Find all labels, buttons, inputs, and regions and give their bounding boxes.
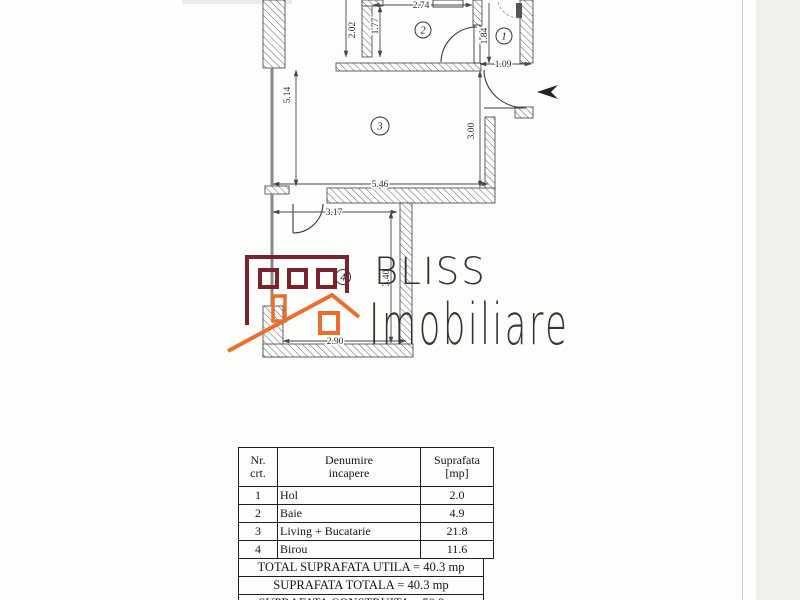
table-row: 3 Living + Bucatarie 21.8 — [239, 523, 494, 541]
room-name-cell: Birou — [278, 541, 421, 559]
room-name-cell: Baie — [278, 505, 421, 523]
area-cell: 21.8 — [421, 523, 494, 541]
dimension-label: 2.90 — [327, 337, 344, 347]
area-cell: 4.9 — [421, 505, 494, 523]
logo-brand-subname: Imobiliare — [369, 292, 569, 358]
row-number-cell: 3 — [239, 523, 278, 541]
svg-text:1: 1 — [501, 32, 506, 43]
dimension-label: 3.17 — [326, 208, 343, 218]
room-number-2: 2 — [415, 22, 431, 38]
area-cell: 11.6 — [421, 541, 494, 559]
dimension-label: 3.00 — [467, 122, 477, 139]
room-number-3: 3 — [371, 117, 389, 135]
svg-text:2: 2 — [420, 26, 426, 37]
dimension-label: 1.77 — [371, 17, 381, 34]
row-number-cell: 2 — [239, 505, 278, 523]
entrance-arrow-icon — [537, 85, 558, 99]
logo-brand-name: BLISS — [374, 250, 487, 293]
room-number-1: 1 — [496, 28, 512, 44]
svg-text:3: 3 — [376, 122, 382, 133]
dimension-label: 2.74 — [413, 1, 430, 11]
header-area-cell: Suprafata [mp] — [421, 448, 494, 487]
area-cell: 2.0 — [421, 487, 494, 505]
scanned-floor-plan-page: 2.74 2.02 1.77 1.84 1.09 5.14 3.00 5.46 … — [0, 0, 800, 600]
row-number-cell: 4 — [239, 541, 278, 559]
row-number-cell: 1 — [239, 487, 278, 505]
table-row: 2 Baie 4.9 — [239, 505, 494, 523]
header-name-cell: Denumire incapere — [278, 448, 421, 487]
dimension-label: 5.14 — [283, 86, 293, 103]
total-line: SUPRAFATA CONSTRUITA = 50.9 mp — [238, 595, 484, 600]
dimension-label: 2.02 — [348, 21, 358, 38]
area-table: Nr. crt. Denumire incapere Suprafata [mp… — [238, 447, 484, 600]
dimension-label: 5.46 — [372, 180, 389, 190]
table-header-row: Nr. crt. Denumire incapere Suprafata [mp… — [239, 448, 494, 487]
table-row: 1 Hol 2.0 — [239, 487, 494, 505]
dimension-label: 1.84 — [480, 27, 490, 44]
header-nr-cell: Nr. crt. — [239, 448, 278, 487]
room-name-cell: Hol — [278, 487, 421, 505]
dimension-label: 1.09 — [495, 60, 512, 70]
table-row: 4 Birou 11.6 — [239, 541, 494, 559]
total-line: SUPRAFATA TOTALA = 40.3 mp — [238, 577, 484, 595]
room-name-cell: Living + Bucatarie — [278, 523, 421, 541]
total-line: TOTAL SUPRAFATA UTILA = 40.3 mp — [238, 559, 484, 577]
